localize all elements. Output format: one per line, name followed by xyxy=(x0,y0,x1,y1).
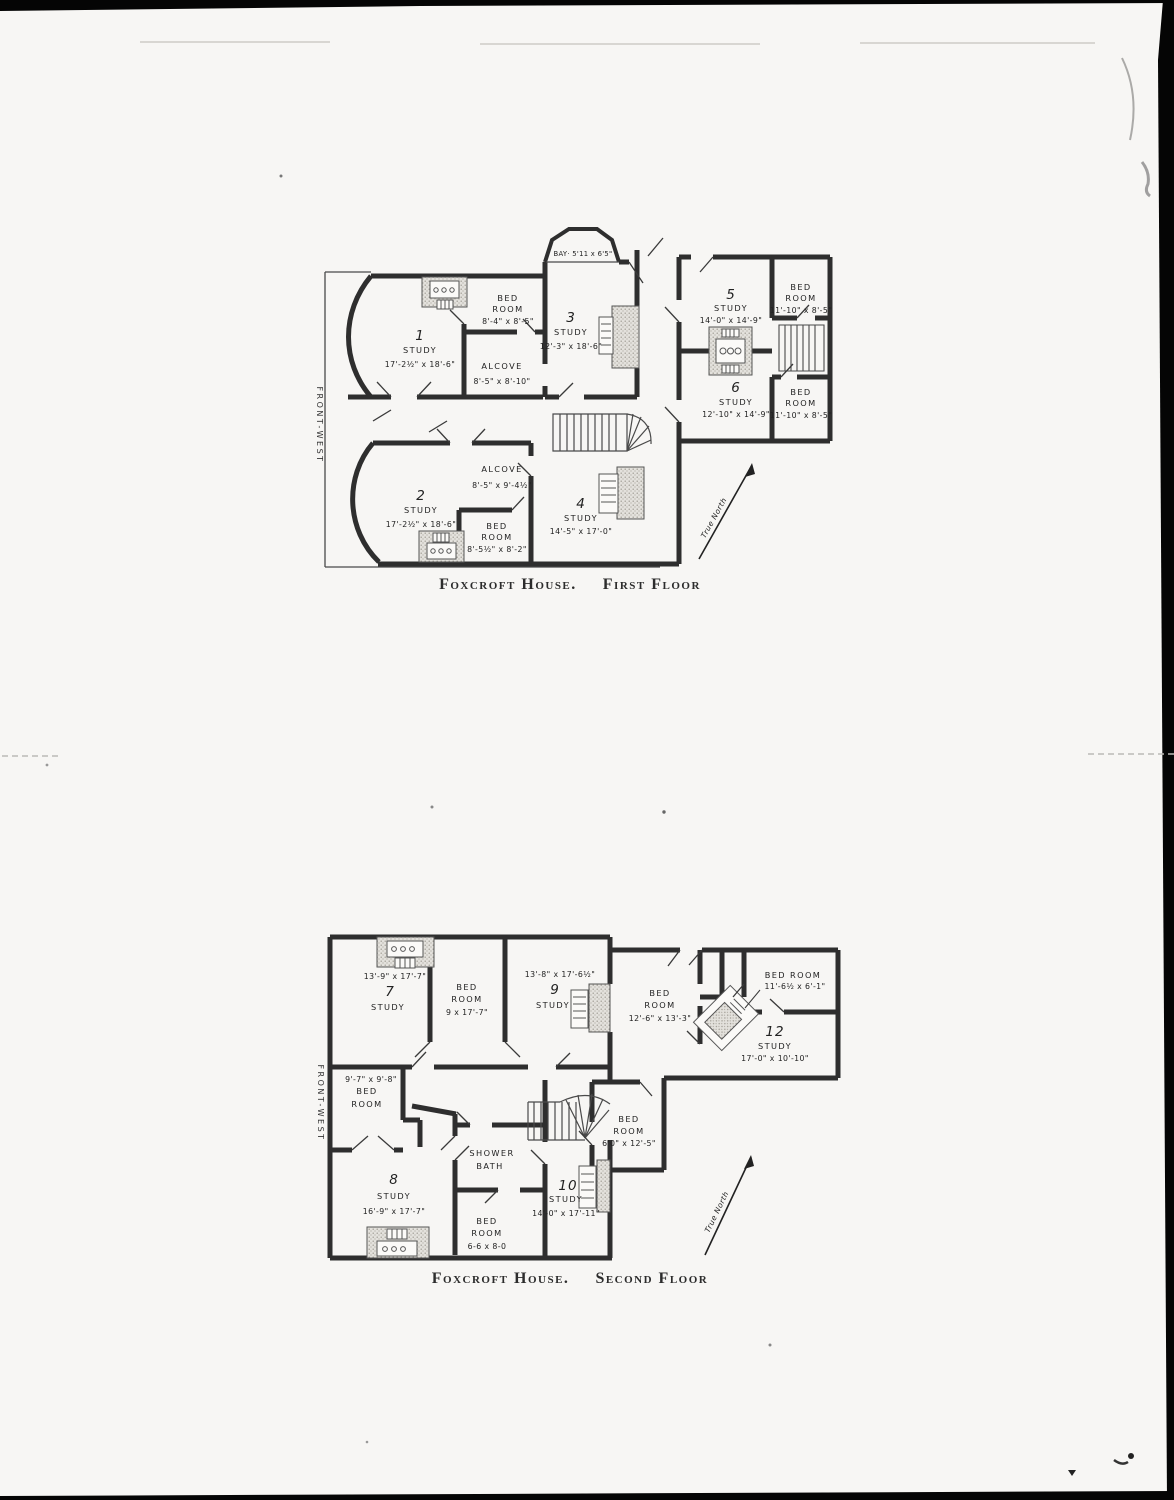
bed-nw-dims: 8'-4" x 8'-5" xyxy=(482,317,534,326)
bed-ne-leader-line xyxy=(745,990,760,1008)
bed-sw-name1: BED xyxy=(486,521,507,531)
room4-name: STUDY xyxy=(564,513,598,523)
scan-edge-right xyxy=(1154,0,1174,1500)
second-floor-caption-title: Foxcroft House. xyxy=(432,1270,570,1288)
bay-label: BAY· 5'11 x 6'5" xyxy=(554,250,613,258)
room8-name: STUDY xyxy=(377,1191,411,1201)
bed-w-dims: 9'-7" x 9'-8" xyxy=(345,1075,397,1084)
room6-name: STUDY xyxy=(719,397,753,407)
bed-sw-dims: 8'-5½" x 8'-2" xyxy=(467,545,527,554)
room12-name: STUDY xyxy=(758,1041,792,1051)
bed-e-name2: ROOM xyxy=(613,1126,644,1136)
first-floor-caption-subtitle: First Floor xyxy=(603,576,701,594)
bed-s-name1: BED xyxy=(476,1216,497,1226)
second-floor-caption-subtitle: Second Floor xyxy=(595,1270,708,1288)
room7-name: STUDY xyxy=(371,1002,405,1012)
fireplace-room10 xyxy=(597,1160,610,1212)
room7-number: 7 xyxy=(385,984,395,1000)
room3-number: 3 xyxy=(566,310,576,326)
room8-number: 8 xyxy=(389,1172,399,1188)
bed-ne-dims: 11'-10" x 8'-5" xyxy=(770,306,832,315)
alcove-s-name: ALCOVE xyxy=(481,464,522,474)
room10-name: STUDY xyxy=(549,1194,583,1204)
room9-dims: 13'-8" x 17'-6½" xyxy=(525,970,595,979)
second-floor-plan: True North FRONT-WEST 13'-9" x 17'-7" 7 … xyxy=(305,925,850,1275)
first-floor-caption-title: Foxcroft House. xyxy=(439,576,577,594)
room12-number: 12 xyxy=(765,1024,784,1040)
bed-n-name2: ROOM xyxy=(451,994,482,1004)
bed-s-name2: ROOM xyxy=(471,1228,502,1238)
alcove-n-dims: 8'-5" x 8'-10" xyxy=(473,377,530,386)
room2-number: 2 xyxy=(416,488,426,504)
bed-n-name1: BED xyxy=(456,982,477,992)
room5-name: STUDY xyxy=(714,303,748,313)
scan-edge-bottom xyxy=(0,1486,1174,1500)
floor1-back-stairs xyxy=(779,325,824,371)
alcove-s-dims: 8'-5" x 9'-4½" xyxy=(472,481,532,490)
fireplace-room3 xyxy=(612,306,639,368)
floor2-front-west-label: FRONT-WEST xyxy=(316,1064,325,1141)
bed-n-dims: 9 x 17'-7" xyxy=(446,1008,488,1017)
bed-e-dims: 6'0" x 12'-5" xyxy=(602,1139,656,1148)
alcove-n-name: ALCOVE xyxy=(481,361,522,371)
room5-number: 5 xyxy=(726,287,736,303)
second-floor-caption: Foxcroft House. Second Floor xyxy=(300,1270,840,1288)
room4-dims: 14'-5" x 17'-0" xyxy=(550,527,612,536)
bed-se-name2: ROOM xyxy=(785,398,816,408)
room6-number: 6 xyxy=(731,380,741,396)
room7-dims: 13'-9" x 17'-7" xyxy=(364,972,426,981)
bed-c-dims: 12'-6" x 13'-3" xyxy=(629,1014,691,1023)
room8-dims: 16'-9" x 17'-7" xyxy=(363,1207,425,1216)
room1-dims: 17'-2½" x 18'-6" xyxy=(385,360,455,369)
room4-number: 4 xyxy=(576,496,586,512)
bed-c-name2: ROOM xyxy=(644,1000,675,1010)
first-floor-plan: True North FRONT-WEST BAY· 5'11 x 6'5" 1… xyxy=(300,220,840,580)
floor2-stairs xyxy=(528,1094,610,1140)
floor2-north-label: True North xyxy=(703,1190,731,1234)
floor1-front-west-label: FRONT-WEST xyxy=(315,386,324,463)
room1-name: STUDY xyxy=(403,345,437,355)
shower-name1: SHOWER xyxy=(469,1148,514,1158)
bed-ne-name2: ROOM xyxy=(785,293,816,303)
bed-se-dims: 11'-10" x 8'-5" xyxy=(770,411,832,420)
room10-number: 10 xyxy=(558,1178,577,1194)
bed-nw-name1: BED xyxy=(497,293,518,303)
bed-se-name1: BED xyxy=(790,387,811,397)
bed-s-dims: 6-6 x 8-0 xyxy=(468,1242,507,1251)
bed-ne2-dims: 11'-6½ x 6'-1" xyxy=(764,982,825,991)
room5-dims: 14'-0" x 14'-9" xyxy=(700,316,762,325)
first-floor-caption: Foxcroft House. First Floor xyxy=(300,576,840,594)
room3-dims: 12'-3" x 18'-6" xyxy=(540,342,602,351)
room9-number: 9 xyxy=(550,982,560,998)
bed-c-name1: BED xyxy=(649,988,670,998)
floor1-north-arrow: True North xyxy=(699,463,755,559)
scanned-page: True North FRONT-WEST BAY· 5'11 x 6'5" 1… xyxy=(0,0,1174,1500)
scan-edge-top xyxy=(0,0,1174,12)
bed-ne-name1: BED xyxy=(790,282,811,292)
room6-dims: 12'-10" x 14'-9" xyxy=(702,410,770,419)
fireplace-room4 xyxy=(617,467,644,519)
room1-number: 1 xyxy=(415,328,425,344)
bed-e-name1: BED xyxy=(618,1114,639,1124)
fireplace-room9 xyxy=(589,984,610,1032)
room12-dims: 17'-0" x 10'-10" xyxy=(741,1054,809,1063)
bed-sw-name2: ROOM xyxy=(481,532,512,542)
bed-w-name1: BED xyxy=(356,1086,377,1096)
bed-nw-name2: ROOM xyxy=(492,304,523,314)
room2-name: STUDY xyxy=(404,505,438,515)
shower-name2: BATH xyxy=(476,1161,503,1171)
room10-dims: 14'-0" x 17'-11" xyxy=(532,1209,600,1218)
room2-dims: 17'-2½" x 18'-6" xyxy=(386,520,456,529)
room3-name: STUDY xyxy=(554,327,588,337)
floor2-north-arrow: True North xyxy=(703,1155,754,1255)
room9-name: STUDY xyxy=(536,1000,570,1010)
bed-ne2-name: BED ROOM xyxy=(765,970,822,980)
bed-w-name2: ROOM xyxy=(351,1099,382,1109)
